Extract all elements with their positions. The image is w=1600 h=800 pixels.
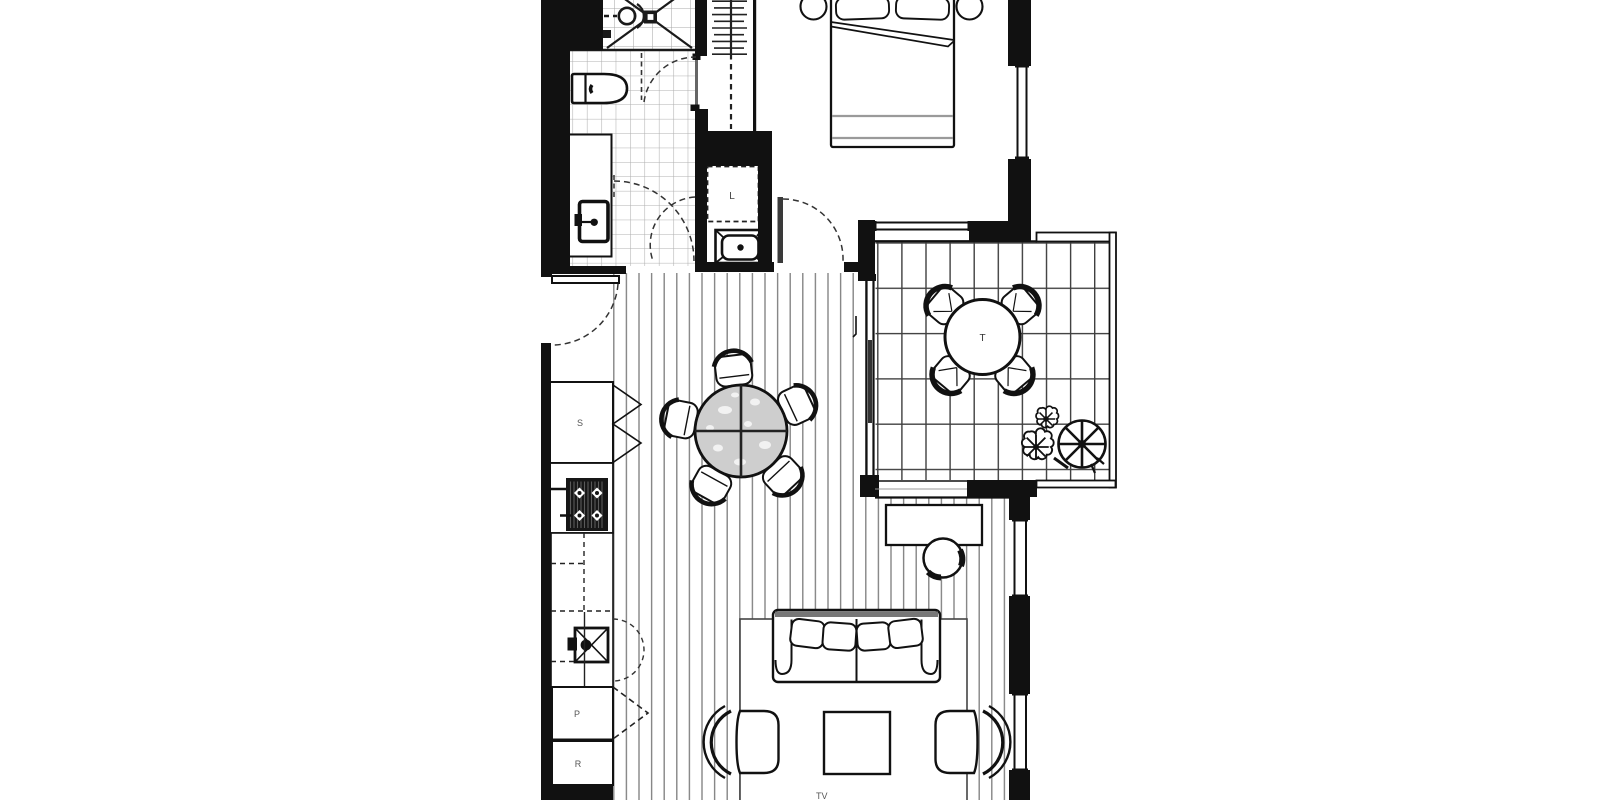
svg-text:L: L — [729, 191, 735, 202]
svg-text:R: R — [575, 759, 582, 769]
svg-text:S: S — [577, 418, 583, 428]
svg-text:P: P — [574, 709, 580, 719]
svg-text:TV: TV — [816, 791, 828, 800]
svg-text:T: T — [979, 333, 985, 344]
